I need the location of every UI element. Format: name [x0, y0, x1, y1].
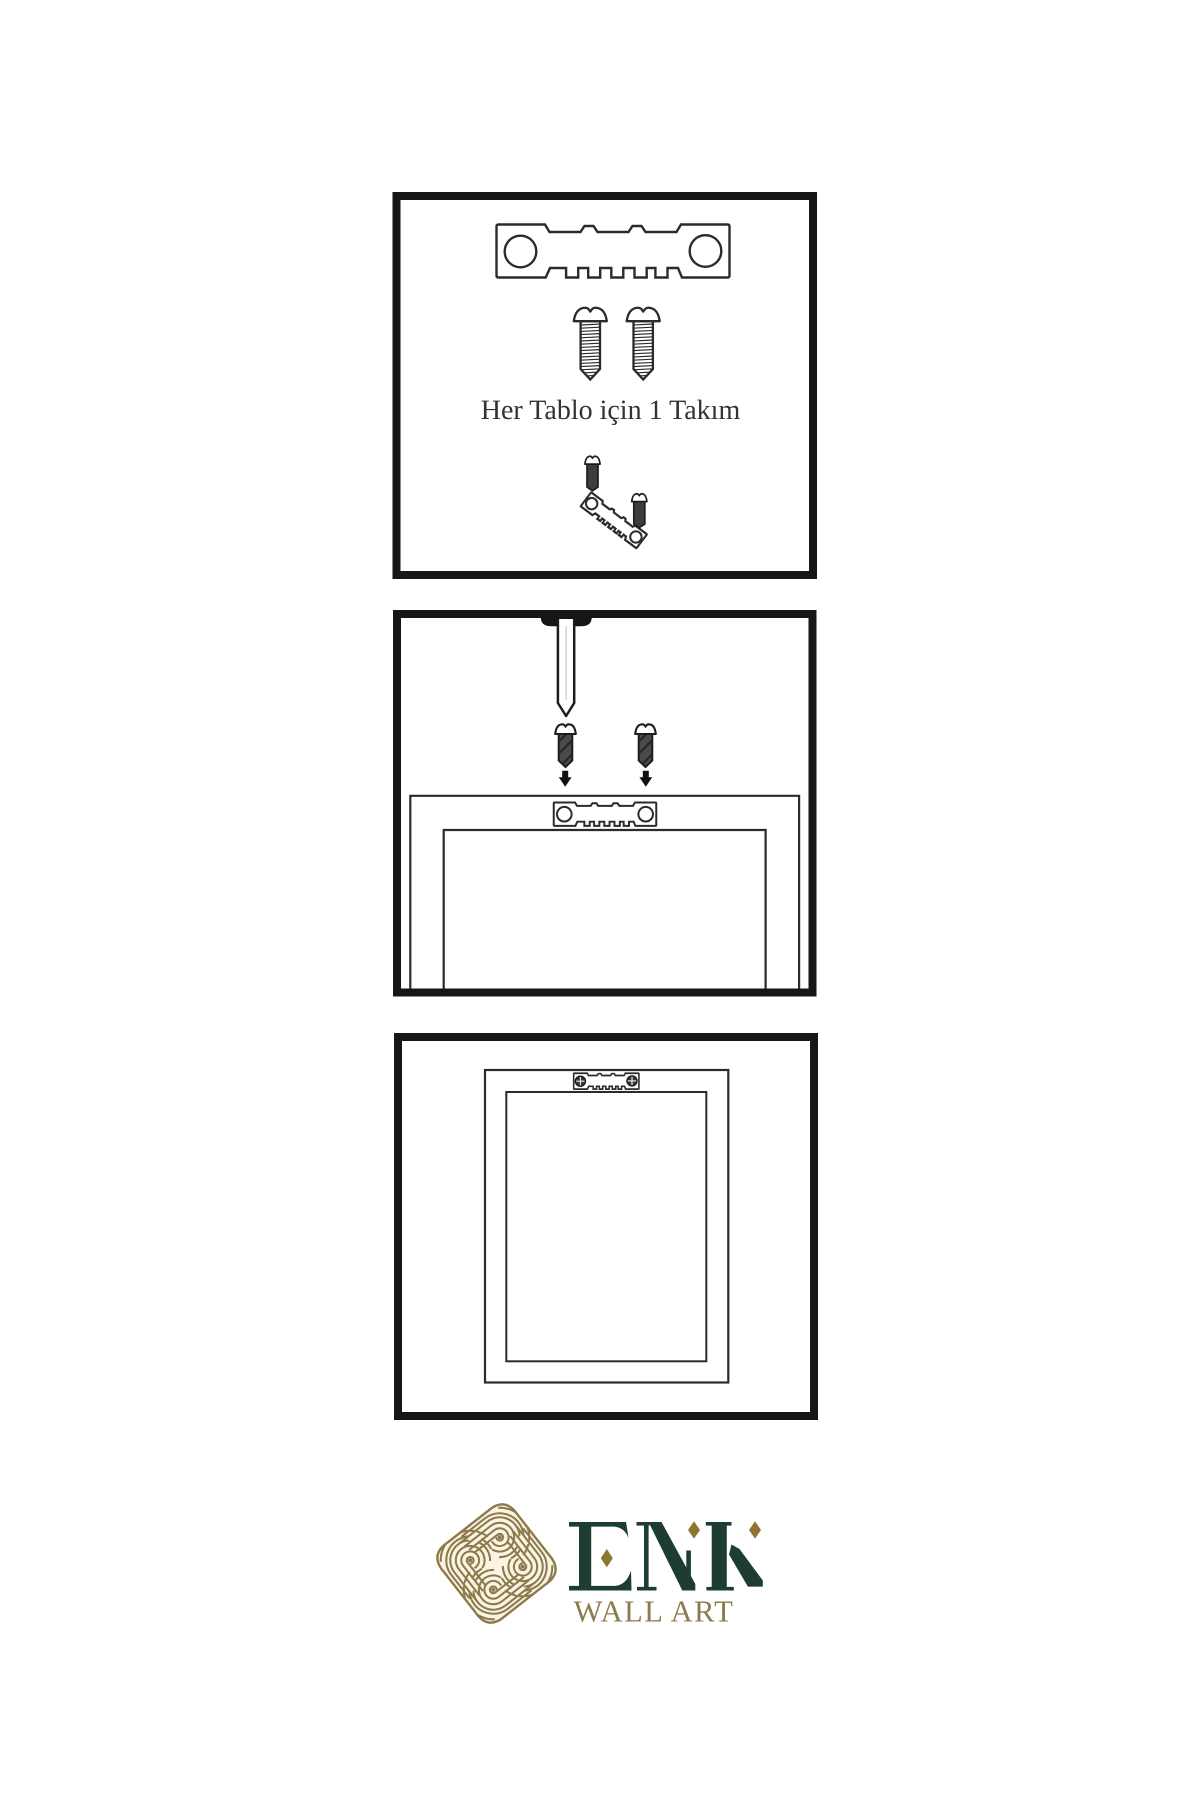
svg-text:Her Tablo için 1 Takım: Her Tablo için 1 Takım [481, 395, 741, 426]
svg-text:WALL ART: WALL ART [574, 1595, 735, 1629]
